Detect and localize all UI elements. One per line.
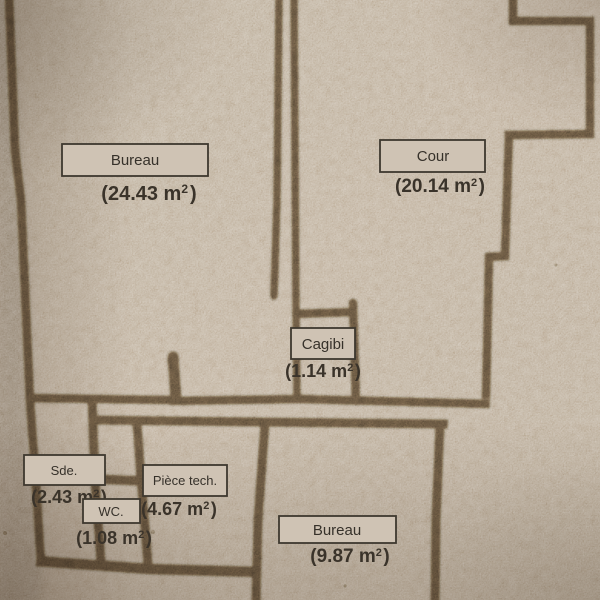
svg-text:Cagibi: Cagibi — [302, 336, 345, 353]
svg-text:Bureau: Bureau — [111, 152, 159, 169]
svg-text:Bureau: Bureau — [313, 522, 361, 539]
svg-text:(9.87 m2): (9.87 m2) — [310, 546, 389, 567]
svg-text:Cour: Cour — [417, 148, 450, 165]
svg-text:WC.: WC. — [98, 504, 123, 519]
svg-text:Pièce tech.: Pièce tech. — [153, 473, 217, 488]
svg-text:(20.14 m2): (20.14 m2) — [395, 176, 485, 197]
svg-text:Sde.: Sde. — [51, 463, 78, 478]
svg-text:(4.67 m2): (4.67 m2) — [141, 499, 217, 519]
svg-text:(1.14 m2): (1.14 m2) — [285, 361, 361, 381]
svg-text:(1.08 m2): (1.08 m2) — [76, 528, 152, 548]
svg-text:(24.43 m2): (24.43 m2) — [101, 182, 196, 205]
